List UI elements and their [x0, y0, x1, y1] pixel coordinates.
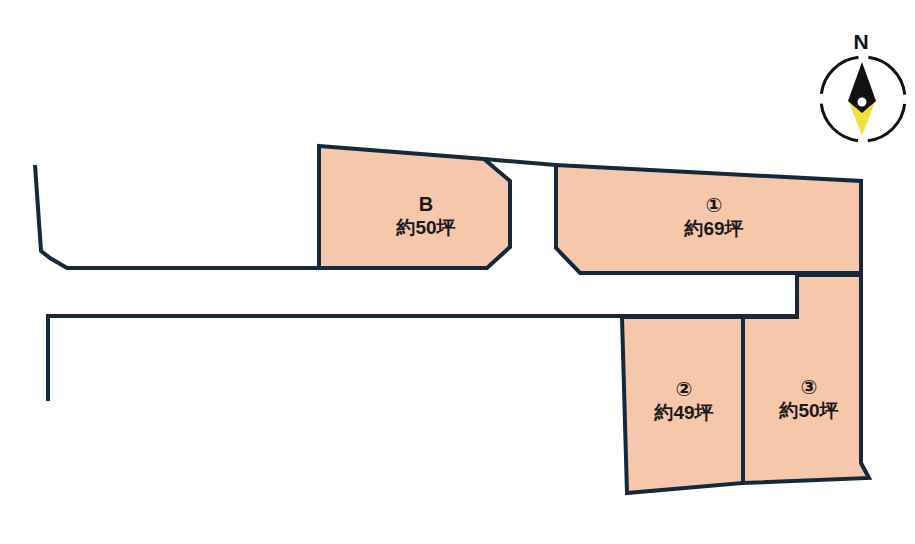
- compass-hub: [858, 98, 867, 107]
- lot-1-area: 約69坪: [684, 217, 743, 241]
- lot-b-label: B 約50坪: [396, 192, 455, 240]
- lot-2-number: ②: [654, 377, 713, 401]
- lot-b-number: B: [396, 192, 455, 216]
- lot-2-label: ② 約49坪: [654, 377, 713, 425]
- lot-b-area: 約50坪: [396, 216, 455, 240]
- lot-3-area: 約50坪: [779, 399, 838, 423]
- lot-3-number: ③: [779, 375, 838, 399]
- lot-layout-diagram: N B 約50坪 ① 約69坪 ② 約49坪 ③ 約50坪: [0, 0, 915, 544]
- lot-3-label: ③ 約50坪: [779, 375, 838, 423]
- boundary-top-gap-segment: [484, 159, 556, 165]
- lot-2-area: 約49坪: [654, 401, 713, 425]
- lot-1-number: ①: [684, 193, 743, 217]
- compass-rose: [821, 57, 905, 141]
- lot-1-label: ① 約69坪: [684, 193, 743, 241]
- road-edge-upper-left: [35, 165, 319, 268]
- compass-north-label: N: [853, 30, 868, 54]
- lot-layout-canvas: [0, 0, 915, 544]
